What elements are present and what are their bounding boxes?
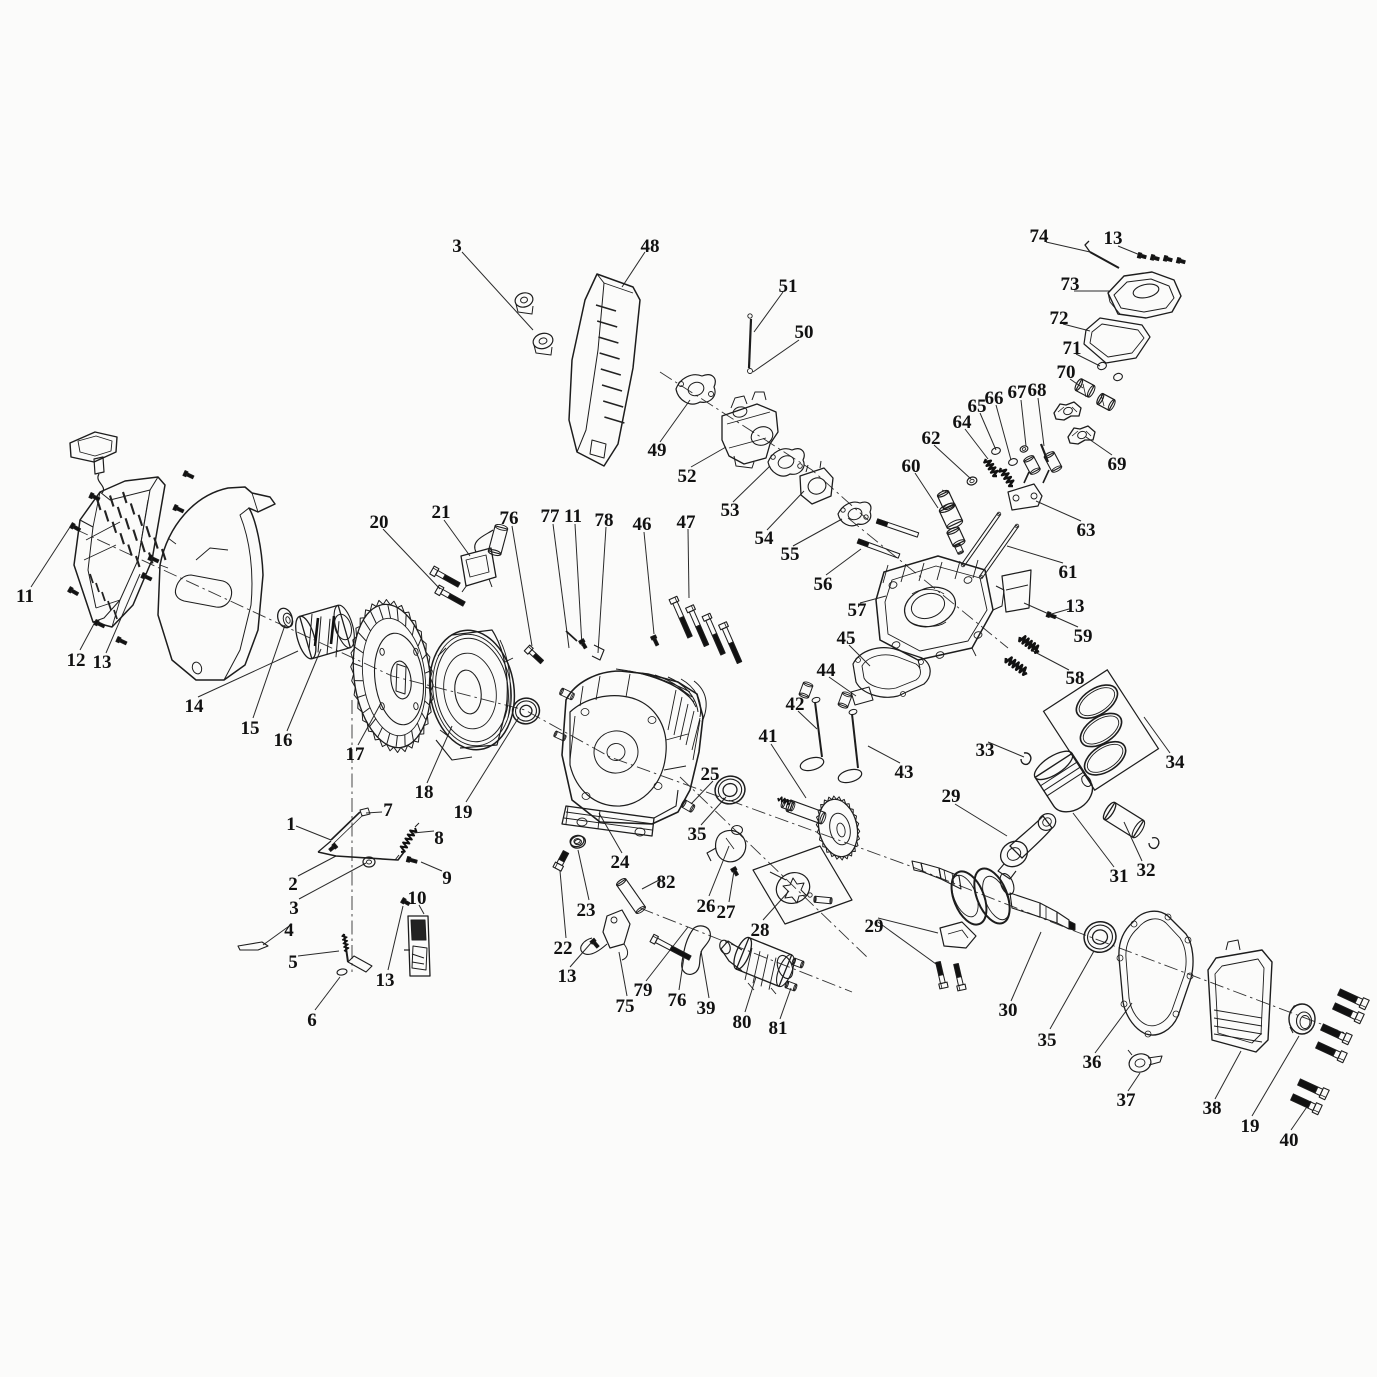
svg-text:20: 20 (370, 512, 389, 533)
svg-text:13: 13 (1066, 596, 1085, 617)
svg-text:53: 53 (721, 500, 740, 521)
svg-text:23: 23 (577, 900, 596, 921)
svg-text:82: 82 (657, 872, 676, 893)
svg-text:1: 1 (286, 814, 296, 835)
svg-text:79: 79 (634, 980, 653, 1001)
svg-text:8: 8 (434, 828, 444, 849)
svg-text:80: 80 (733, 1012, 752, 1033)
svg-text:4: 4 (284, 920, 294, 941)
svg-text:7: 7 (383, 800, 393, 821)
svg-text:11: 11 (16, 586, 34, 607)
svg-text:19: 19 (1241, 1116, 1260, 1137)
svg-text:3: 3 (289, 898, 299, 919)
svg-text:27: 27 (717, 902, 737, 923)
svg-text:54: 54 (755, 528, 775, 549)
svg-text:16: 16 (274, 730, 293, 751)
svg-text:40: 40 (1280, 1130, 1299, 1151)
svg-text:51: 51 (779, 276, 798, 297)
svg-text:46: 46 (633, 514, 652, 535)
svg-text:31: 31 (1110, 866, 1129, 887)
svg-text:60: 60 (902, 456, 921, 477)
svg-text:12: 12 (67, 650, 86, 671)
svg-text:57: 57 (848, 600, 868, 621)
svg-text:33: 33 (976, 740, 995, 761)
svg-text:9: 9 (442, 868, 452, 889)
svg-text:62: 62 (922, 428, 941, 449)
svg-text:37: 37 (1117, 1090, 1137, 1111)
svg-text:39: 39 (697, 998, 716, 1019)
svg-text:59: 59 (1074, 626, 1093, 647)
svg-text:24: 24 (611, 852, 631, 873)
svg-text:43: 43 (895, 762, 914, 783)
svg-text:64: 64 (953, 412, 973, 433)
svg-text:47: 47 (677, 512, 697, 533)
svg-text:34: 34 (1166, 752, 1186, 773)
svg-text:63: 63 (1077, 520, 1096, 541)
svg-text:38: 38 (1203, 1098, 1222, 1119)
svg-text:45: 45 (837, 628, 856, 649)
svg-text:55: 55 (781, 544, 800, 565)
svg-text:48: 48 (641, 236, 660, 257)
svg-text:35: 35 (1038, 1030, 1057, 1051)
svg-text:13: 13 (93, 652, 112, 673)
svg-text:29: 29 (865, 916, 884, 937)
svg-text:67: 67 (1008, 382, 1028, 403)
svg-text:56: 56 (814, 574, 833, 595)
svg-text:32: 32 (1137, 860, 1156, 881)
svg-text:78: 78 (595, 510, 614, 531)
svg-text:13: 13 (558, 966, 577, 987)
svg-text:36: 36 (1083, 1052, 1102, 1073)
svg-text:76: 76 (500, 508, 519, 529)
svg-text:75: 75 (616, 996, 635, 1017)
svg-text:28: 28 (751, 920, 770, 941)
svg-text:18: 18 (415, 782, 434, 803)
svg-text:71: 71 (1063, 338, 1082, 359)
svg-text:5: 5 (288, 952, 298, 973)
svg-text:74: 74 (1030, 226, 1050, 247)
svg-text:6: 6 (307, 1010, 317, 1031)
svg-text:73: 73 (1061, 274, 1080, 295)
svg-text:21: 21 (432, 502, 451, 523)
svg-text:14: 14 (185, 696, 205, 717)
svg-text:66: 66 (985, 388, 1004, 409)
svg-text:61: 61 (1059, 562, 1078, 583)
svg-text:41: 41 (759, 726, 778, 747)
svg-text:44: 44 (817, 660, 837, 681)
svg-text:35: 35 (688, 824, 707, 845)
svg-text:2: 2 (288, 874, 298, 895)
svg-text:76: 76 (668, 990, 687, 1011)
svg-text:49: 49 (648, 440, 667, 461)
svg-text:72: 72 (1050, 308, 1069, 329)
svg-text:30: 30 (999, 1000, 1018, 1021)
svg-text:25: 25 (701, 764, 720, 785)
svg-text:68: 68 (1028, 380, 1047, 401)
svg-text:3: 3 (452, 236, 462, 257)
svg-text:70: 70 (1057, 362, 1076, 383)
svg-text:52: 52 (678, 466, 697, 487)
svg-text:19: 19 (454, 802, 473, 823)
svg-text:13: 13 (376, 970, 395, 991)
svg-text:22: 22 (554, 938, 573, 959)
svg-text:26: 26 (697, 896, 716, 917)
svg-text:29: 29 (942, 786, 961, 807)
svg-text:15: 15 (241, 718, 260, 739)
svg-text:77: 77 (541, 506, 561, 527)
svg-text:10: 10 (408, 888, 427, 909)
svg-text:17: 17 (346, 744, 366, 765)
svg-text:81: 81 (769, 1018, 788, 1039)
svg-text:13: 13 (1104, 228, 1123, 249)
svg-text:69: 69 (1108, 454, 1127, 475)
svg-text:50: 50 (795, 322, 814, 343)
svg-text:11: 11 (564, 506, 582, 527)
